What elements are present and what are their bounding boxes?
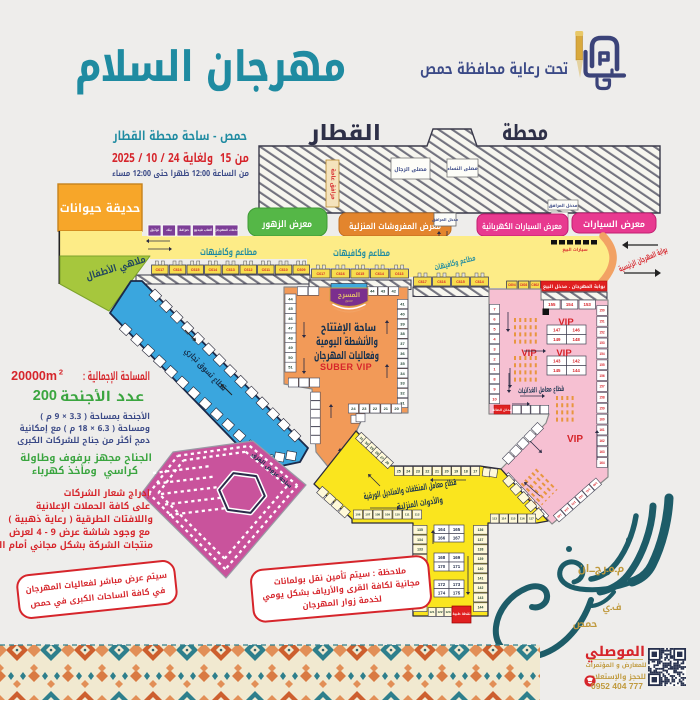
svg-text:48: 48 [288, 335, 293, 340]
svg-text:18: 18 [464, 469, 468, 473]
svg-text:23: 23 [416, 469, 420, 473]
svg-text:C616: C616 [336, 272, 345, 276]
svg-text:C610: C610 [279, 268, 288, 272]
svg-text:154: 154 [566, 302, 574, 307]
svg-text:144: 144 [478, 606, 484, 610]
svg-text:175: 175 [453, 590, 461, 595]
svg-text:38: 38 [400, 331, 405, 336]
svg-text:C603: C603 [520, 283, 528, 287]
svg-text:117: 117 [529, 517, 534, 521]
svg-text:168: 168 [438, 555, 446, 560]
svg-text:144: 144 [573, 368, 581, 373]
svg-text:142: 142 [478, 586, 484, 590]
svg-text:C613: C613 [395, 272, 404, 276]
svg-text:25: 25 [397, 469, 401, 473]
svg-text:50: 50 [288, 355, 293, 360]
svg-text:VIP: VIP [556, 348, 572, 359]
svg-text:142: 142 [573, 358, 581, 363]
svg-text:165: 165 [453, 527, 461, 532]
svg-text:C615: C615 [191, 268, 200, 272]
svg-text:33: 33 [400, 381, 405, 386]
svg-text:C613: C613 [226, 268, 235, 272]
svg-text:20: 20 [394, 406, 399, 411]
svg-text:171: 171 [453, 564, 461, 569]
svg-text:35: 35 [400, 361, 405, 366]
svg-text:22: 22 [373, 406, 378, 411]
svg-text:169: 169 [453, 555, 461, 560]
svg-text:51: 51 [288, 365, 293, 370]
svg-text:121: 121 [429, 610, 434, 614]
svg-text:160: 160 [599, 417, 605, 421]
svg-text:17: 17 [473, 469, 477, 473]
svg-text:C616: C616 [173, 268, 182, 272]
svg-text:C617: C617 [418, 280, 427, 284]
svg-text:133: 133 [417, 548, 423, 552]
svg-text:C612: C612 [244, 268, 253, 272]
svg-text:172: 172 [438, 582, 446, 587]
svg-text:46: 46 [288, 316, 293, 321]
svg-text:164: 164 [599, 461, 605, 465]
svg-text:C615: C615 [456, 280, 465, 284]
svg-text:42: 42 [391, 289, 396, 294]
svg-text:34: 34 [400, 371, 405, 376]
svg-text:37: 37 [400, 341, 405, 346]
svg-text:VIP: VIP [558, 317, 574, 328]
svg-text:135: 135 [417, 528, 423, 532]
svg-text:150: 150 [599, 309, 605, 313]
svg-text:21: 21 [435, 469, 439, 473]
svg-text:24: 24 [406, 469, 410, 473]
svg-text:0952 404 777: 0952 404 777 [591, 681, 643, 691]
svg-text:106: 106 [355, 513, 360, 517]
svg-text:157: 157 [599, 385, 605, 389]
svg-text:110: 110 [395, 513, 400, 517]
svg-text:10: 10 [492, 397, 497, 402]
svg-text:151: 151 [599, 320, 605, 324]
svg-text:134: 134 [417, 538, 423, 542]
svg-text:143: 143 [478, 596, 484, 600]
svg-text:C609: C609 [297, 268, 306, 272]
svg-text:153: 153 [599, 341, 605, 345]
svg-text:162: 162 [599, 439, 605, 443]
svg-text:22: 22 [425, 469, 429, 473]
svg-text:147: 147 [553, 327, 561, 332]
svg-text:44: 44 [370, 289, 375, 294]
svg-text:47: 47 [288, 326, 293, 331]
svg-text:C615: C615 [356, 272, 365, 276]
svg-text:164: 164 [438, 527, 446, 532]
svg-text:23: 23 [362, 406, 367, 411]
svg-text:21: 21 [384, 406, 389, 411]
svg-text:136: 136 [478, 528, 484, 532]
svg-text:C617: C617 [156, 268, 165, 272]
svg-text:170: 170 [438, 564, 446, 569]
svg-text:C604: C604 [508, 283, 516, 287]
svg-text:109: 109 [385, 513, 390, 517]
svg-text:39: 39 [400, 321, 405, 326]
svg-text:153: 153 [584, 302, 592, 307]
svg-text:19: 19 [454, 469, 458, 473]
svg-text:137: 137 [478, 538, 484, 542]
svg-text:C614: C614 [209, 268, 218, 272]
svg-text:2: 2 [59, 368, 63, 377]
svg-text:161: 161 [599, 428, 605, 432]
svg-text:20: 20 [445, 469, 449, 473]
svg-text:156: 156 [599, 374, 605, 378]
svg-text:107: 107 [365, 513, 370, 517]
svg-text:167: 167 [453, 535, 461, 540]
svg-text:41: 41 [400, 302, 405, 307]
svg-text:123: 123 [445, 610, 450, 614]
svg-text:C617: C617 [317, 272, 326, 276]
svg-text:158: 158 [599, 396, 605, 400]
svg-text:122: 122 [437, 610, 442, 614]
svg-text:115: 115 [511, 517, 516, 521]
svg-text:149: 149 [553, 337, 561, 342]
svg-text:114: 114 [501, 517, 506, 521]
svg-text:200: 200 [33, 388, 57, 404]
svg-text:20000m: 20000m [11, 369, 57, 383]
svg-text:45: 45 [288, 306, 293, 311]
svg-text:159: 159 [599, 406, 605, 410]
svg-text:143: 143 [553, 358, 561, 363]
svg-text:140: 140 [478, 567, 484, 571]
svg-text:111: 111 [405, 513, 410, 517]
svg-text:VIP: VIP [567, 434, 583, 445]
svg-text:141: 141 [478, 577, 484, 581]
svg-text:154: 154 [599, 352, 605, 356]
svg-text:138: 138 [478, 548, 484, 552]
svg-text:113: 113 [492, 517, 497, 521]
svg-text:36: 36 [400, 351, 405, 356]
svg-text:116: 116 [520, 517, 525, 521]
svg-text:148: 148 [573, 337, 581, 342]
svg-text:108: 108 [375, 513, 380, 517]
svg-text:173: 173 [453, 582, 461, 587]
svg-text:152: 152 [599, 330, 605, 334]
svg-text:112: 112 [415, 513, 420, 517]
svg-text:139: 139 [478, 557, 484, 561]
svg-text:32: 32 [400, 391, 405, 396]
svg-text:C611: C611 [262, 268, 270, 272]
svg-text:174: 174 [438, 590, 446, 595]
svg-text:44: 44 [288, 296, 293, 301]
svg-text:146: 146 [573, 327, 581, 332]
svg-text:C614: C614 [375, 272, 384, 276]
svg-text:24: 24 [351, 406, 356, 411]
svg-text:40: 40 [400, 311, 405, 316]
svg-text:163: 163 [599, 450, 605, 454]
svg-text:145: 145 [553, 368, 561, 373]
svg-text:49: 49 [288, 345, 293, 350]
svg-text:43: 43 [381, 289, 386, 294]
svg-text:166: 166 [438, 535, 446, 540]
svg-text:C602: C602 [531, 283, 539, 287]
svg-text:C616: C616 [437, 280, 446, 284]
svg-text:155: 155 [599, 363, 605, 367]
svg-text:155: 155 [548, 302, 556, 307]
svg-text:C614: C614 [475, 280, 484, 284]
svg-text:SUBER VIP: SUBER VIP [320, 362, 372, 372]
